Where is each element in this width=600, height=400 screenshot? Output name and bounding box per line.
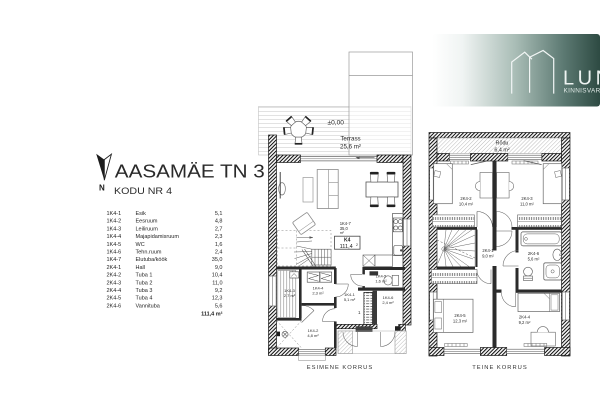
- svg-text:2K4-4: 2K4-4: [107, 288, 122, 294]
- svg-text:WC: WC: [136, 242, 145, 248]
- svg-text:10,4 m²: 10,4 m²: [459, 202, 474, 207]
- svg-text:Esik: Esik: [136, 211, 147, 217]
- svg-text:1K4-4: 1K4-4: [107, 234, 122, 240]
- svg-text:Hall: Hall: [136, 265, 145, 271]
- svg-text:K4: K4: [344, 238, 351, 244]
- svg-text:35,0: 35,0: [212, 257, 223, 263]
- svg-text:Eesruum: Eesruum: [136, 219, 158, 225]
- svg-text:1: 1: [358, 310, 361, 315]
- svg-text:N: N: [99, 184, 105, 193]
- svg-text:Tehn.ruum: Tehn.ruum: [136, 250, 162, 256]
- svg-text:2: 2: [356, 243, 358, 247]
- svg-text:KINNISVARA: KINNISVARA: [564, 88, 600, 95]
- svg-text:2K4-5: 2K4-5: [107, 296, 122, 302]
- svg-text:9,2: 9,2: [215, 288, 223, 294]
- svg-text:2K4-6: 2K4-6: [107, 303, 122, 309]
- svg-text:12,3 m²: 12,3 m²: [453, 319, 468, 324]
- svg-text:1,6 m²: 1,6 m²: [375, 279, 387, 284]
- svg-text:1,6: 1,6: [215, 242, 223, 248]
- svg-text:2K4-4: 2K4-4: [519, 315, 531, 320]
- svg-text:Majapidamisruum: Majapidamisruum: [136, 234, 180, 240]
- svg-text:2K4-1: 2K4-1: [482, 248, 494, 253]
- svg-text:2K4-6: 2K4-6: [528, 251, 540, 256]
- svg-text:TEINE KORRUS: TEINE KORRUS: [472, 365, 527, 371]
- svg-text:9,0: 9,0: [215, 265, 223, 271]
- svg-text:Vannituba: Vannituba: [136, 303, 161, 309]
- svg-text:5,6 m²: 5,6 m²: [528, 257, 540, 262]
- svg-text:2K4-5: 2K4-5: [454, 313, 466, 318]
- svg-text:2,7: 2,7: [215, 226, 223, 232]
- svg-text:Rõdu: Rõdu: [496, 141, 509, 147]
- svg-text:1K4-2: 1K4-2: [107, 219, 122, 225]
- svg-text:6,4 m²: 6,4 m²: [494, 148, 509, 154]
- svg-text:Tuba 3: Tuba 3: [136, 288, 153, 294]
- svg-text:2,4 m²: 2,4 m²: [382, 300, 394, 305]
- svg-text:5,1: 5,1: [215, 211, 223, 217]
- svg-text:KODU NR 4: KODU NR 4: [114, 186, 172, 196]
- svg-text:4,8: 4,8: [215, 219, 223, 225]
- svg-text:2,3 m²: 2,3 m²: [312, 291, 324, 296]
- svg-text:m²: m²: [340, 231, 345, 235]
- svg-text:1K4-5: 1K4-5: [107, 242, 122, 248]
- svg-text:2K4-2: 2K4-2: [107, 273, 122, 279]
- svg-text:1K4-7: 1K4-7: [107, 257, 122, 263]
- svg-text:5,1 m²: 5,1 m²: [344, 297, 356, 302]
- svg-text:5,6: 5,6: [215, 303, 223, 309]
- svg-text:2,7 m²: 2,7 m²: [284, 293, 296, 298]
- svg-text:4,8 m²: 4,8 m²: [307, 333, 319, 338]
- svg-text:±0,00: ±0,00: [328, 120, 345, 127]
- svg-text:11,0: 11,0: [212, 280, 222, 286]
- svg-text:Tuba 2: Tuba 2: [136, 280, 153, 286]
- svg-text:AASAMÄE TN 3: AASAMÄE TN 3: [115, 162, 265, 182]
- svg-text:2,4: 2,4: [215, 250, 223, 256]
- svg-text:2K4-3: 2K4-3: [107, 280, 122, 286]
- svg-text:111,4 m²: 111,4 m²: [201, 310, 223, 317]
- svg-text:Tuba 4: Tuba 4: [136, 296, 153, 302]
- svg-text:25,6 m²: 25,6 m²: [340, 144, 361, 151]
- svg-text:1K4-6: 1K4-6: [107, 250, 122, 256]
- svg-text:Terrass: Terrass: [340, 136, 360, 143]
- svg-text:9,0 m²: 9,0 m²: [482, 254, 494, 259]
- svg-text:1K4-1: 1K4-1: [107, 211, 122, 217]
- svg-text:ESIMENE KORRUS: ESIMENE KORRUS: [307, 365, 374, 371]
- svg-text:Leiliruum: Leiliruum: [136, 226, 159, 232]
- svg-text:1K4-3: 1K4-3: [107, 226, 122, 232]
- svg-text:11,0 m²: 11,0 m²: [520, 202, 534, 207]
- svg-text:2K4-3: 2K4-3: [521, 196, 533, 201]
- svg-text:111,4: 111,4: [340, 244, 353, 250]
- svg-text:12,3: 12,3: [212, 296, 223, 302]
- svg-text:2,3: 2,3: [215, 234, 223, 240]
- svg-text:Elutuba/köök: Elutuba/köök: [136, 257, 168, 263]
- svg-text:2K4-1: 2K4-1: [107, 265, 122, 271]
- svg-text:LUND: LUND: [563, 68, 600, 90]
- svg-text:10,4: 10,4: [212, 273, 223, 279]
- svg-text:9,2 m²: 9,2 m²: [519, 320, 531, 325]
- svg-text:Tuba 1: Tuba 1: [136, 273, 153, 279]
- svg-text:2K4-2: 2K4-2: [460, 196, 472, 201]
